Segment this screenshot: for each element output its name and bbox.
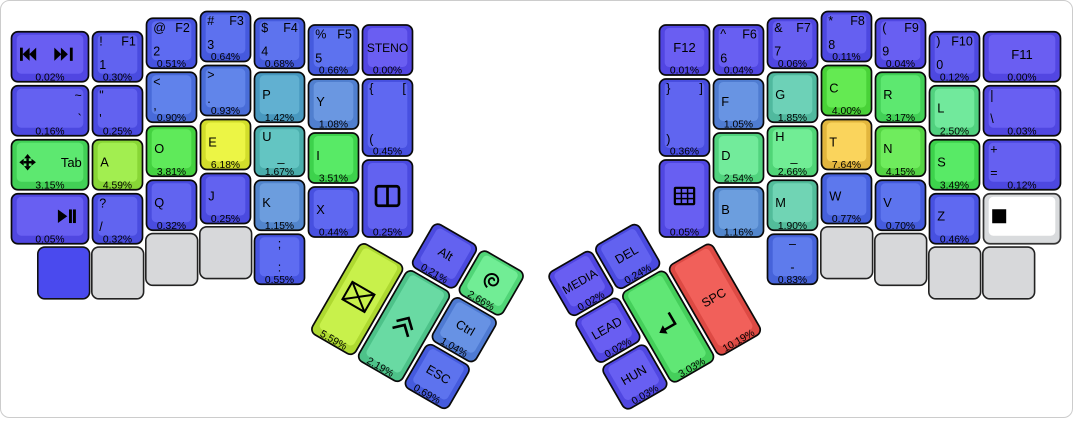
svg-text:#: # xyxy=(207,14,214,28)
svg-text:0.77%: 0.77% xyxy=(832,214,861,225)
svg-text:F3: F3 xyxy=(229,14,244,28)
svg-text:3.15%: 3.15% xyxy=(35,180,64,191)
svg-text:F8: F8 xyxy=(850,14,865,28)
svg-text:H: H xyxy=(775,129,784,144)
svg-text:=: = xyxy=(990,166,997,180)
svg-text:9: 9 xyxy=(882,45,889,59)
svg-text:+: + xyxy=(990,142,997,156)
svg-text:Z: Z xyxy=(937,209,945,224)
svg-text:STENO: STENO xyxy=(367,41,408,55)
svg-text:~: ~ xyxy=(74,88,81,102)
svg-text:K: K xyxy=(262,195,271,210)
svg-text:0: 0 xyxy=(936,58,943,72)
svg-text:0.93%: 0.93% xyxy=(211,106,240,117)
svg-text:0.70%: 0.70% xyxy=(886,221,915,232)
svg-text:O: O xyxy=(154,141,164,156)
svg-text:S: S xyxy=(937,155,946,170)
svg-text:2.66%: 2.66% xyxy=(778,167,807,178)
svg-text:}: } xyxy=(666,82,670,96)
svg-text:3.51%: 3.51% xyxy=(319,174,348,185)
svg-text:3.81%: 3.81% xyxy=(157,167,186,178)
svg-text:0.25%: 0.25% xyxy=(373,228,402,239)
svg-text:`: ` xyxy=(78,112,82,126)
svg-text:Y: Y xyxy=(316,94,325,109)
svg-text:4.15%: 4.15% xyxy=(886,167,915,178)
svg-text:V: V xyxy=(883,195,892,210)
svg-text:U: U xyxy=(262,129,271,144)
svg-text:–: – xyxy=(789,237,796,251)
svg-text:_: _ xyxy=(790,150,799,164)
svg-text:B: B xyxy=(721,202,730,217)
svg-text:7: 7 xyxy=(774,45,781,59)
svg-text:^: ^ xyxy=(720,28,726,42)
svg-text:0.51%: 0.51% xyxy=(157,59,186,70)
svg-text:0.01%: 0.01% xyxy=(670,66,699,77)
svg-text:A: A xyxy=(100,155,109,170)
svg-text:": " xyxy=(99,88,103,102)
svg-text:0.05%: 0.05% xyxy=(670,228,699,239)
svg-text:0.30%: 0.30% xyxy=(103,72,132,83)
svg-text:F9: F9 xyxy=(904,21,919,35)
svg-text:Q: Q xyxy=(154,195,164,210)
svg-text:N: N xyxy=(883,141,892,156)
svg-text:4.00%: 4.00% xyxy=(832,106,861,117)
svg-text:F12: F12 xyxy=(673,40,695,55)
svg-text:1.08%: 1.08% xyxy=(319,120,348,131)
svg-text:0.32%: 0.32% xyxy=(103,234,132,245)
svg-text:0.46%: 0.46% xyxy=(940,234,969,245)
svg-text:!: ! xyxy=(99,34,102,48)
svg-text:3.17%: 3.17% xyxy=(886,113,915,124)
svg-text:&: & xyxy=(774,21,783,35)
svg-text:W: W xyxy=(829,188,842,203)
svg-text:0.05%: 0.05% xyxy=(35,234,64,245)
svg-text:D: D xyxy=(721,148,730,163)
svg-text:F10: F10 xyxy=(951,34,973,48)
svg-text:Tab: Tab xyxy=(61,155,82,170)
svg-text:L: L xyxy=(937,101,944,116)
svg-text:-: - xyxy=(790,261,794,275)
svg-text:0.90%: 0.90% xyxy=(157,113,186,124)
svg-text:X: X xyxy=(316,202,325,217)
svg-text:0.55%: 0.55% xyxy=(265,275,294,286)
svg-text:$: $ xyxy=(261,21,268,35)
svg-text:0.02%: 0.02% xyxy=(35,72,64,83)
svg-text:R: R xyxy=(883,87,892,102)
svg-text:0.04%: 0.04% xyxy=(724,66,753,77)
svg-text:0.03%: 0.03% xyxy=(1007,126,1036,137)
svg-text:4: 4 xyxy=(261,45,268,59)
svg-text:_: _ xyxy=(277,150,286,164)
svg-text:0.25%: 0.25% xyxy=(103,126,132,137)
svg-text:@: @ xyxy=(153,21,166,35)
svg-text:;: ; xyxy=(278,237,281,251)
svg-text:1.90%: 1.90% xyxy=(778,221,807,232)
svg-text:*: * xyxy=(828,14,833,28)
svg-text:F6: F6 xyxy=(742,28,757,42)
svg-text::: : xyxy=(278,261,281,275)
svg-text:G: G xyxy=(775,87,785,102)
svg-text:1: 1 xyxy=(99,58,106,72)
svg-text:F1: F1 xyxy=(121,34,136,48)
svg-text:0.00%: 0.00% xyxy=(373,66,402,77)
svg-text:2: 2 xyxy=(153,45,160,59)
svg-text:0.11%: 0.11% xyxy=(832,52,860,63)
svg-text:2.54%: 2.54% xyxy=(724,174,753,185)
svg-text:0.12%: 0.12% xyxy=(940,72,969,83)
svg-text:0.06%: 0.06% xyxy=(778,59,807,70)
svg-text:]: ] xyxy=(699,82,702,96)
svg-text:4.59%: 4.59% xyxy=(103,180,132,191)
svg-text:0.66%: 0.66% xyxy=(319,66,348,77)
svg-text:): ) xyxy=(666,132,670,146)
svg-text:,: , xyxy=(153,99,156,113)
svg-text:E: E xyxy=(208,134,217,149)
svg-text:/: / xyxy=(99,220,103,234)
svg-text:1.16%: 1.16% xyxy=(724,228,753,239)
svg-text:0.44%: 0.44% xyxy=(319,228,348,239)
svg-text:<: < xyxy=(153,75,160,89)
svg-text:P: P xyxy=(262,87,271,102)
svg-text:0.64%: 0.64% xyxy=(211,52,240,63)
svg-text:3.49%: 3.49% xyxy=(940,180,969,191)
svg-text:0.68%: 0.68% xyxy=(265,59,294,70)
svg-text:0.12%: 0.12% xyxy=(1007,180,1036,191)
svg-text:0.16%: 0.16% xyxy=(35,126,64,137)
svg-text:1.85%: 1.85% xyxy=(778,113,807,124)
svg-text:5: 5 xyxy=(315,51,322,65)
svg-text:): ) xyxy=(936,34,940,48)
svg-text:>: > xyxy=(207,68,214,82)
svg-text:0.36%: 0.36% xyxy=(670,147,699,158)
svg-text:0.25%: 0.25% xyxy=(211,214,240,225)
svg-text:7.64%: 7.64% xyxy=(832,160,861,171)
svg-text:C: C xyxy=(829,80,838,95)
svg-text:0.32%: 0.32% xyxy=(157,221,186,232)
svg-text:{: { xyxy=(369,82,373,96)
svg-text:1.42%: 1.42% xyxy=(265,113,294,124)
svg-text:0.83%: 0.83% xyxy=(778,275,807,286)
svg-text:1.15%: 1.15% xyxy=(265,221,294,232)
svg-text:': ' xyxy=(99,112,101,126)
svg-text:?: ? xyxy=(99,196,106,210)
svg-text:M: M xyxy=(775,195,786,210)
svg-text:6: 6 xyxy=(720,51,727,65)
svg-text:1.05%: 1.05% xyxy=(724,120,753,131)
svg-text:0.04%: 0.04% xyxy=(886,59,915,70)
svg-text:F5: F5 xyxy=(337,28,352,42)
svg-text:1.67%: 1.67% xyxy=(265,167,294,178)
svg-text:J: J xyxy=(208,188,214,203)
svg-text:F: F xyxy=(721,94,729,109)
svg-text:|: | xyxy=(990,88,993,102)
svg-text:3: 3 xyxy=(207,38,214,52)
svg-text:\: \ xyxy=(990,112,994,126)
svg-text:F7: F7 xyxy=(796,21,811,35)
svg-text:T: T xyxy=(829,134,837,149)
svg-text:F11: F11 xyxy=(1011,47,1032,62)
svg-text:I: I xyxy=(316,148,320,163)
svg-text:0.00%: 0.00% xyxy=(1007,72,1036,83)
svg-text:6.18%: 6.18% xyxy=(211,160,240,171)
svg-text:[: [ xyxy=(402,82,406,96)
svg-text:0.45%: 0.45% xyxy=(373,147,402,158)
svg-text:8: 8 xyxy=(828,38,835,52)
svg-text:%: % xyxy=(315,28,326,42)
svg-text:F2: F2 xyxy=(175,21,190,35)
svg-text:F4: F4 xyxy=(283,21,298,35)
svg-text:.: . xyxy=(207,92,210,106)
svg-text:2.50%: 2.50% xyxy=(940,126,969,137)
